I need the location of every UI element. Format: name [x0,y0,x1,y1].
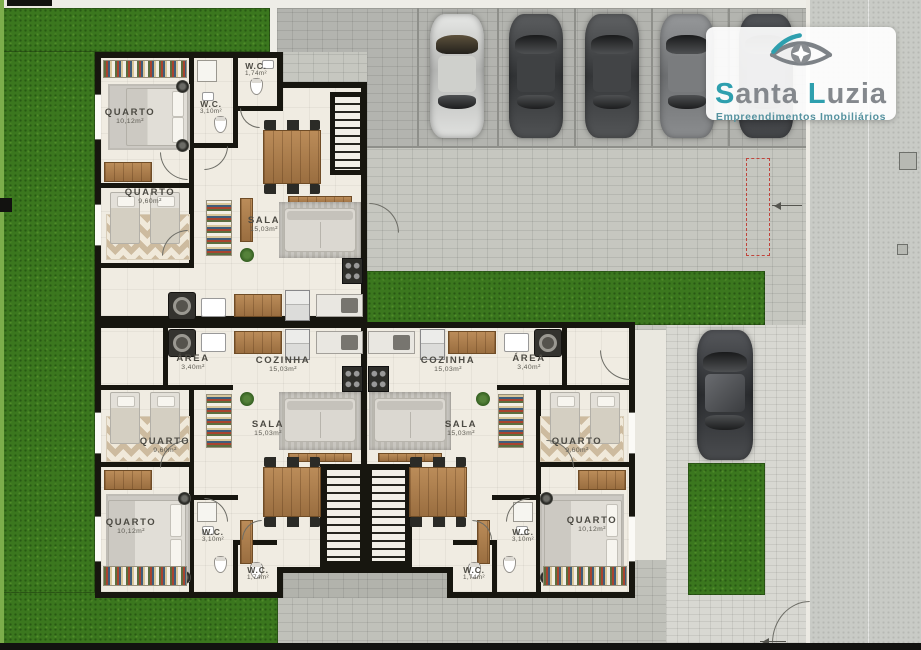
hall-shelf [498,394,524,448]
driveway-car [697,330,753,460]
kitchen-sink-counter [316,331,363,354]
pouf [176,139,189,152]
car-windshield [703,352,747,372]
desk [104,162,152,182]
car-windshield [666,35,708,54]
room-label-quarto: QUARTO9,60m² [140,437,191,454]
laundry-sink [201,333,226,352]
kitchen-counter [234,331,282,354]
logo: SantaLuzia Empreendimentos Imobiliários [706,27,896,120]
stove [342,258,363,284]
walkway-strip [270,8,277,52]
boundary-top-left [7,0,52,6]
car-rear-window [705,415,745,431]
kitchen-counter [448,331,496,354]
dining-chairs [264,184,320,194]
plant [240,248,254,262]
room-label-wc: W.C.3,10m² [512,528,534,544]
stairs [335,97,360,170]
unit-top-notch [277,52,367,88]
room-label-cozinha: COZINHA15,03m² [421,356,475,373]
hall-shelf [206,394,232,448]
wall [101,263,194,268]
laundry-sink [504,333,529,352]
utility-box [899,152,917,170]
desk [104,470,152,490]
room-label-area: ÁREA3,40m² [512,354,545,371]
kitchen-sink-counter [316,294,363,317]
parked-car-silver [430,14,484,138]
wall [277,82,283,111]
plant [476,392,490,406]
wardrobe-rack [103,60,187,78]
dining-table [409,467,467,517]
room-label-sala: SALA15,03m² [252,420,284,437]
kitchen-sink-counter [368,331,415,354]
car-roof [593,56,632,92]
car-rear-window [438,95,477,110]
car-roof [438,56,477,92]
brand-name: SantaLuzia [706,78,896,111]
dining-chairs [264,120,320,130]
double-bed [544,500,622,576]
pouf [178,492,191,505]
room-label-quarto: QUARTO10,12m² [106,518,157,535]
utility-box [897,244,908,255]
washing-machine [168,292,196,320]
car-roof [705,374,745,412]
laundry-sink [201,298,226,317]
dining-table [263,130,321,184]
wall [233,58,238,148]
stairwell-bottom-units [320,464,412,567]
room-label-sala: SALA15,03m² [445,420,477,437]
stall-line [574,8,576,148]
shower-box [197,60,217,82]
lawn-right-patch [688,463,765,595]
gate-arrow [760,641,786,642]
entry-arrow [772,205,802,206]
room-label-quarto: QUARTO10,12m² [105,108,156,125]
parked-car-dark [509,14,563,138]
fridge [285,290,310,321]
eye-icon [762,31,840,80]
lawn-edge-light [0,0,4,645]
room-label-area: ÁREA3,40m² [176,354,209,371]
lawn-middle-strip [367,271,765,325]
plant [240,392,254,406]
room-label-wc: W.C.1,74m² [245,62,267,78]
stall-line [651,8,653,148]
room-label-wc: W.C.3,10m² [202,528,224,544]
room-label-wc: W.C.1,74m² [247,566,269,582]
lawn-left [3,8,95,645]
car-windshield [591,35,633,54]
dining-chairs [264,457,320,467]
room-label-quarto: QUARTO9,60m² [125,188,176,205]
unit-bl-notch [277,567,367,598]
dining-table [263,467,321,517]
sofa [284,208,356,252]
stairs [327,470,360,561]
wardrobe-rack [543,566,627,586]
desk [578,470,626,490]
window [629,412,635,454]
boundary-bottom [0,643,921,650]
lawn-bottom-left [3,592,278,645]
window [95,94,101,140]
room-label-wc: W.C.1,74m² [463,566,485,582]
car-rear-window [593,95,632,110]
stove [342,366,363,392]
stairs [372,470,405,561]
wall [497,385,629,390]
brand-tagline: Empreendimentos Imobiliários [706,111,896,123]
car-windshield [515,35,557,54]
car-roof [668,56,707,92]
window [95,204,101,246]
car-windshield [436,35,478,54]
stove [368,366,389,392]
stall-line [497,8,499,148]
wall [194,495,238,500]
pouf [540,492,553,505]
single-bed [110,392,140,444]
wardrobe-rack [103,566,187,586]
dining-chairs [410,457,466,467]
room-label-wc: W.C.3,10m² [200,100,222,116]
wall [101,385,233,390]
dining-chairs [410,517,466,527]
boundary-left-tick [0,198,12,212]
stall-line [417,8,419,148]
window [95,412,101,454]
wall [492,540,497,598]
room-label-quarto: QUARTO9,60m² [552,437,603,454]
room-label-quarto: QUARTO10,12m² [567,516,618,533]
window [95,516,101,562]
stairwell-top-unit [330,92,365,175]
car-rear-window [517,95,556,110]
wall [233,540,238,598]
room-label-sala: SALA15,03m² [248,216,280,233]
room-label-cozinha: COZINHA15,03m² [256,356,310,373]
floor-plan-canvas: QUARTO10,12m² W.C.3,10m² W.C.1,74m² QUAR… [0,0,921,650]
car-roof [517,56,556,92]
hall-shelf [206,200,232,256]
dining-chairs [264,517,320,527]
parked-car-dark [585,14,639,138]
wall [562,328,567,385]
unit-br-notch [367,567,453,598]
lawn-top [3,8,270,52]
gate-marking [746,158,770,256]
double-bed [108,500,186,576]
kitchen-counter [234,294,282,317]
car-rear-window [668,95,707,110]
pouf [176,80,189,93]
sofa [374,398,446,442]
window [629,516,635,562]
sofa [284,398,356,442]
